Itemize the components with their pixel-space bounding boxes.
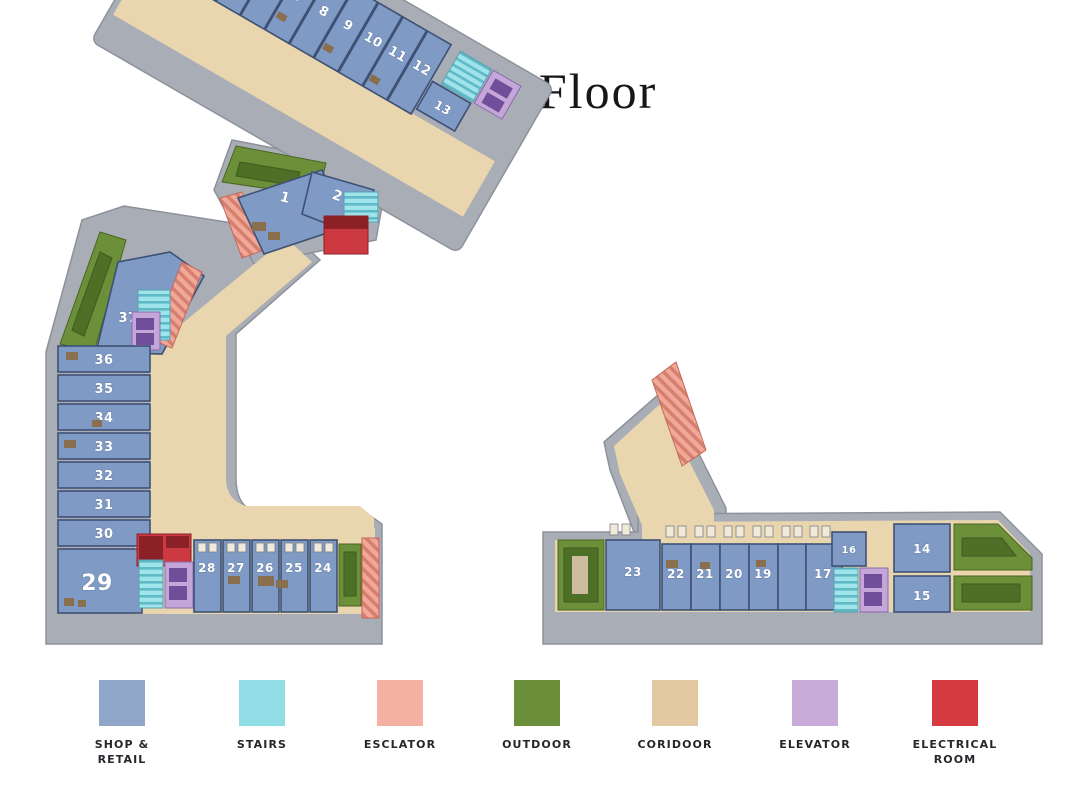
garden-bench (572, 556, 588, 594)
room-35-label: 35 (94, 382, 113, 397)
furniture-mark-10 (64, 598, 74, 606)
window-0 (610, 524, 618, 535)
electrical-south-dark2 (166, 536, 189, 548)
window-18 (256, 543, 264, 552)
window-9 (765, 526, 773, 537)
furniture-mark-11 (78, 600, 86, 607)
furniture-mark-17 (756, 560, 766, 567)
room-21-label: 21 (696, 567, 714, 581)
furniture-mark-13 (258, 576, 274, 586)
window-6 (724, 526, 732, 537)
garden-southwest-hedge (344, 552, 356, 596)
window-2 (666, 526, 674, 537)
window-20 (285, 543, 293, 552)
outdoor-swatch (514, 680, 560, 726)
room-16-label: 16 (842, 545, 857, 556)
legend-item-stairs: STAIRS (197, 680, 327, 753)
elevator-west-car2 (136, 333, 154, 345)
elevator-south-car2 (169, 586, 187, 600)
window-17 (238, 543, 246, 552)
window-3 (678, 526, 686, 537)
room-29-label: 29 (81, 571, 113, 596)
window-19 (267, 543, 275, 552)
legend-item-outdoor: OUTDOOR (472, 680, 602, 753)
room-19-label: 19 (754, 567, 772, 581)
stairs-south (139, 560, 163, 608)
window-7 (736, 526, 744, 537)
electrical-room-swatch (932, 680, 978, 726)
room-26-label: 26 (256, 561, 274, 575)
room-28-label: 28 (198, 561, 216, 575)
furniture-mark-1 (268, 232, 280, 240)
electrical-room-label: ELECTRICAL ROOM (890, 738, 1020, 768)
legend: SHOP & RETAILSTAIRSESCLATOROUTDOORCORIDO… (0, 680, 1080, 790)
room-22-label: 22 (667, 567, 685, 581)
coridoor-swatch (652, 680, 698, 726)
room-unlabeled (778, 544, 806, 610)
legend-item-elevator: ELEVATOR (750, 680, 880, 753)
furniture-mark-15 (666, 560, 678, 568)
window-10 (782, 526, 790, 537)
window-13 (822, 526, 830, 537)
elevator-label: ELEVATOR (750, 738, 880, 753)
room-25-label: 25 (285, 561, 303, 575)
elevator-east-car2 (864, 592, 882, 606)
stairs-label: STAIRS (197, 738, 327, 753)
coridoor-label: CORIDOOR (610, 738, 740, 753)
room-31-label: 31 (94, 498, 113, 513)
furniture-mark-16 (700, 562, 710, 569)
room-33-label: 33 (94, 440, 113, 455)
window-1 (622, 524, 630, 535)
window-14 (198, 543, 206, 552)
legend-item-coridoor: CORIDOOR (610, 680, 740, 753)
furniture-mark-14 (276, 580, 288, 588)
elevator-west-car1 (136, 318, 154, 330)
furniture-mark-8 (92, 420, 102, 427)
window-22 (314, 543, 322, 552)
furniture-mark-12 (228, 576, 240, 584)
floor-plan-page: First Floor 3456789101112131237363534333… (0, 0, 1080, 810)
elevator-east-car1 (864, 574, 882, 588)
stairs-swatch (239, 680, 285, 726)
escalator-southwest (362, 538, 379, 618)
elevator-swatch (792, 680, 838, 726)
legend-item-electrical-room: ELECTRICAL ROOM (890, 680, 1020, 768)
window-23 (325, 543, 333, 552)
garden-east-lower-hedge (962, 584, 1020, 602)
room-15-label: 15 (913, 589, 931, 603)
esclator-swatch (377, 680, 423, 726)
esclator-label: ESCLATOR (335, 738, 465, 753)
stairs-east (834, 568, 858, 612)
window-4 (695, 526, 703, 537)
room-36-label: 36 (94, 353, 113, 368)
room-27-label: 27 (227, 561, 245, 575)
room-24-label: 24 (314, 561, 332, 575)
legend-item-esclator: ESCLATOR (335, 680, 465, 753)
room-17-label: 17 (814, 567, 832, 581)
legend-item-shop-retail: SHOP & RETAIL (57, 680, 187, 768)
furniture-mark-0 (252, 222, 266, 231)
room-23-label: 23 (624, 565, 642, 579)
room-30-label: 30 (94, 527, 113, 542)
furniture-mark-9 (64, 440, 76, 448)
room-20-label: 20 (725, 567, 743, 581)
window-15 (209, 543, 217, 552)
shop-retail-swatch (99, 680, 145, 726)
window-11 (794, 526, 802, 537)
electrical-north-dark (324, 216, 368, 229)
shop-retail-label: SHOP & RETAIL (57, 738, 187, 768)
furniture-mark-7 (66, 352, 78, 360)
window-12 (810, 526, 818, 537)
window-5 (707, 526, 715, 537)
room-14-label: 14 (913, 542, 931, 556)
window-21 (296, 543, 304, 552)
elevator-south-car1 (169, 568, 187, 582)
window-16 (227, 543, 235, 552)
window-8 (753, 526, 761, 537)
outdoor-label: OUTDOOR (472, 738, 602, 753)
room-32-label: 32 (94, 469, 113, 484)
floorplan-root: 3456789101112131237363534333231302928272… (46, 0, 1042, 644)
